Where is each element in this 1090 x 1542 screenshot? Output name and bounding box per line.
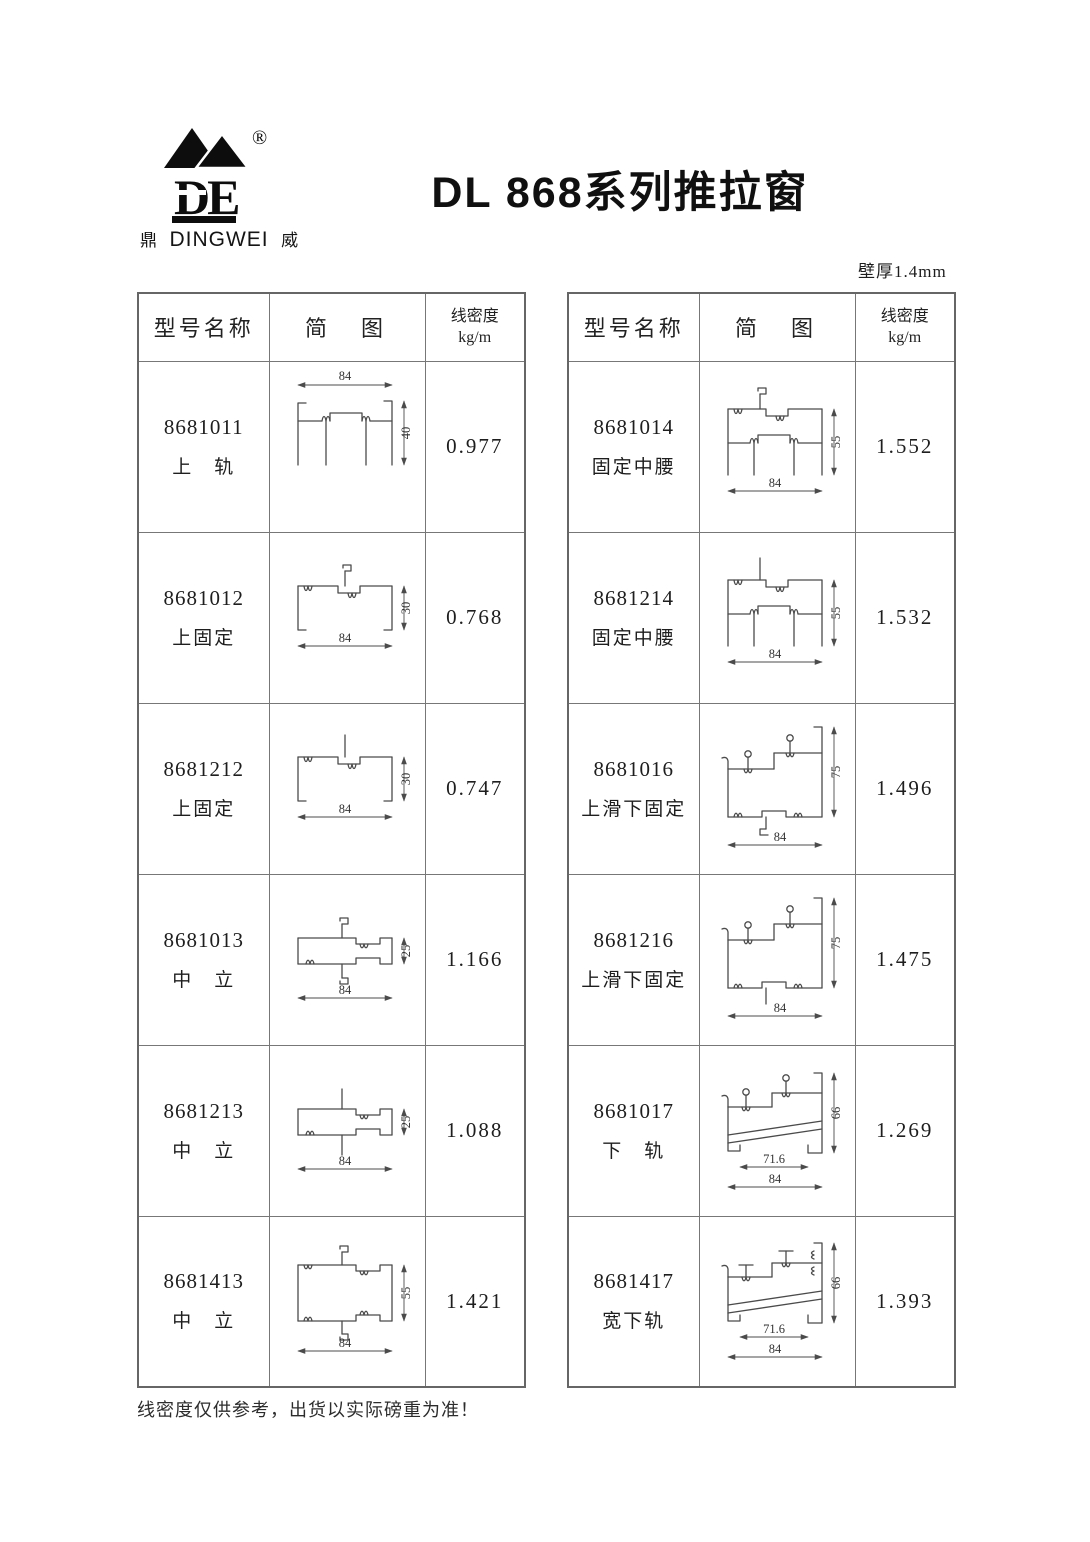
density-value: 1.269 [876,1118,933,1142]
model-name: 上固定 [139,623,269,650]
model-cell: 8681014 固定中腰 [568,361,699,532]
model-cell: 8681017 下 轨 [568,1045,699,1216]
col-header-model: 型号名称 [568,293,699,361]
table-row: 8681013 中 立 [138,874,525,1045]
brand-cn-right: 威 [281,231,298,250]
density-header-line2: kg/m [426,327,525,349]
model-name: 上滑下固定 [569,965,699,992]
diagram-cell: 55 84 [699,361,855,532]
diagram-cell: 84 40 [269,361,425,532]
density-value: 1.088 [446,1118,503,1142]
catalog-sheet: ® DE 鼎 DINGWEI 威 DL 868系列推拉窗 壁厚1.4mm 型号名… [0,0,1090,1542]
density-header-line2: kg/m [856,327,955,349]
density-cell: 1.532 [855,532,955,703]
brand-name: 鼎 DINGWEI 威 [140,226,330,252]
dim-label: 71.6 [763,1322,785,1336]
dim-label: 84 [768,1172,781,1186]
table-row: 8681016 上滑下固定 [568,703,955,874]
profile-diagram: 84 30 [270,705,425,873]
density-value: 1.166 [446,947,503,971]
dim-label: 84 [768,647,781,661]
model-cell: 8681413 中 立 [138,1216,269,1387]
model-cell: 8681213 中 立 [138,1045,269,1216]
dim-label: 66 [829,1277,843,1290]
col-header-density: 线密度 kg/m [425,293,525,361]
profile-diagram: 75 84 [700,876,855,1044]
model-name: 固定中腰 [569,452,699,479]
density-cell: 1.475 [855,874,955,1045]
model-cell: 8681012 上固定 [138,532,269,703]
table-row: 8681012 上固定 84 30 [138,532,525,703]
dim-label: 84 [338,1154,351,1168]
profile-diagram: 55 84 [700,363,855,531]
density-cell: 1.393 [855,1216,955,1387]
dim-label: 25 [399,944,413,957]
density-header-line1: 线密度 [426,306,525,328]
col-header-diagram: 简 图 [699,293,855,361]
density-value: 1.552 [876,434,933,458]
density-value: 1.475 [876,947,933,971]
footer-note: 线密度仅供参考，出货以实际磅重为准！ [137,1396,479,1422]
dim-label: 25 [399,1115,413,1128]
model-number: 8681417 [569,1269,699,1294]
registered-mark: ® [252,127,267,149]
brand-logo: ® DE [140,122,310,242]
diagram-cell: 25 84 [269,1045,425,1216]
density-cell: 0.768 [425,532,525,703]
dim-label: 71.6 [763,1152,785,1166]
profile-diagram: 25 84 [270,1047,425,1215]
dim-label: 84 [768,476,781,490]
dim-label: 84 [338,631,351,645]
model-number: 8681013 [139,928,269,953]
profile-diagram: 25 84 [270,876,425,1044]
page-title: DL 868系列推拉窗 [431,158,808,220]
diagram-cell: 75 84 [699,703,855,874]
right-spec-table: 型号名称 简 图 线密度 kg/m 8681014 固定中腰 [567,292,956,1388]
density-cell: 1.269 [855,1045,955,1216]
model-number: 8681413 [139,1269,269,1294]
table-row: 8681417 宽下轨 [568,1216,955,1387]
density-cell: 1.496 [855,703,955,874]
dim-label: 30 [399,601,413,614]
profile-diagram: 66 71.6 84 [700,1047,855,1215]
density-value: 0.747 [446,776,503,800]
dim-label: 55 [829,435,843,448]
brand-cn-left: 鼎 [140,231,157,250]
diagram-cell: 66 71.6 84 [699,1216,855,1387]
header-row: 型号名称 简 图 线密度 kg/m [138,293,525,361]
table-row: 8681413 中 立 [138,1216,525,1387]
dim-label: 84 [338,802,351,816]
table-row: 8681213 中 立 25 [138,1045,525,1216]
model-number: 8681012 [139,586,269,611]
density-header-line1: 线密度 [856,306,955,328]
dim-label: 40 [399,426,413,439]
wall-thickness-note: 壁厚1.4mm [858,257,947,282]
model-number: 8681016 [569,757,699,782]
profile-diagram: 55 84 [700,534,855,702]
model-cell: 8681214 固定中腰 [568,532,699,703]
model-number: 8681011 [139,415,269,440]
model-cell: 8681212 上固定 [138,703,269,874]
table-row: 8681216 上滑下固定 [568,874,955,1045]
density-cell: 0.977 [425,361,525,532]
model-number: 8681213 [139,1099,269,1124]
model-cell: 8681417 宽下轨 [568,1216,699,1387]
model-name: 上滑下固定 [569,794,699,821]
diagram-cell: 75 84 [699,874,855,1045]
model-name: 上 轨 [139,452,269,479]
model-name: 固定中腰 [569,623,699,650]
col-header-density: 线密度 kg/m [855,293,955,361]
model-number: 8681014 [569,415,699,440]
dim-label: 55 [829,606,843,619]
model-number: 8681214 [569,586,699,611]
dim-label: 55 [399,1287,413,1300]
diagram-cell: 55 84 [699,532,855,703]
model-name: 宽下轨 [569,1306,699,1333]
dim-label: 84 [773,830,786,844]
model-cell: 8681013 中 立 [138,874,269,1045]
model-cell: 8681011 上 轨 [138,361,269,532]
profile-diagram: 75 84 [700,705,855,873]
dim-label: 84 [338,369,351,383]
model-number: 8681216 [569,928,699,953]
density-cell: 1.421 [425,1216,525,1387]
diagram-cell: 66 71.6 84 [699,1045,855,1216]
profile-diagram: 66 71.6 84 [700,1217,855,1385]
profile-diagram: 84 30 [270,534,425,702]
diagram-cell: 55 84 [269,1216,425,1387]
density-cell: 1.166 [425,874,525,1045]
dim-label: 84 [773,1001,786,1015]
table-row: 8681017 下 轨 [568,1045,955,1216]
density-value: 0.977 [446,434,503,458]
model-number: 8681212 [139,757,269,782]
density-cell: 1.088 [425,1045,525,1216]
density-value: 1.496 [876,776,933,800]
col-header-diagram: 简 图 [269,293,425,361]
model-name: 中 立 [139,965,269,992]
table-row: 8681214 固定中腰 [568,532,955,703]
model-name: 下 轨 [569,1136,699,1163]
table-row: 8681014 固定中腰 [568,361,955,532]
dim-label: 30 [399,772,413,785]
dim-label: 84 [768,1342,781,1356]
model-cell: 8681216 上滑下固定 [568,874,699,1045]
header-row: 型号名称 简 图 线密度 kg/m [568,293,955,361]
density-value: 0.768 [446,605,503,629]
diagram-cell: 84 30 [269,703,425,874]
model-name: 上固定 [139,794,269,821]
model-number: 8681017 [569,1099,699,1124]
density-value: 1.393 [876,1289,933,1313]
model-name: 中 立 [139,1306,269,1333]
profile-diagram: 84 40 [270,363,425,531]
dim-label: 66 [829,1106,843,1119]
density-cell: 0.747 [425,703,525,874]
density-cell: 1.552 [855,361,955,532]
model-cell: 8681016 上滑下固定 [568,703,699,874]
dim-label: 75 [829,936,843,949]
table-row: 8681011 上 轨 84 [138,361,525,532]
density-value: 1.421 [446,1289,503,1313]
profile-diagram: 55 84 [270,1217,425,1385]
dim-label: 84 [338,983,351,997]
diagram-cell: 84 30 [269,532,425,703]
dim-label: 75 [829,765,843,778]
brand-en: DINGWEI [169,228,268,251]
dim-label: 84 [338,1336,351,1350]
model-name: 中 立 [139,1136,269,1163]
density-value: 1.532 [876,605,933,629]
table-row: 8681212 上固定 84 30 [138,703,525,874]
diagram-cell: 25 84 [269,874,425,1045]
left-spec-table: 型号名称 简 图 线密度 kg/m 8681011 上 轨 84 [137,292,526,1388]
col-header-model: 型号名称 [138,293,269,361]
